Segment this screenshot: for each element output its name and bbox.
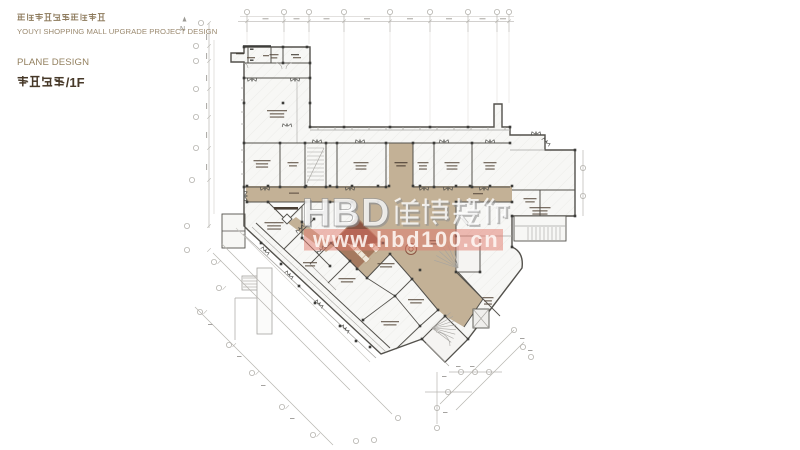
svg-text:/1F: /1F (66, 75, 85, 90)
svg-text:www.hbd100.cn: www.hbd100.cn (312, 227, 499, 252)
